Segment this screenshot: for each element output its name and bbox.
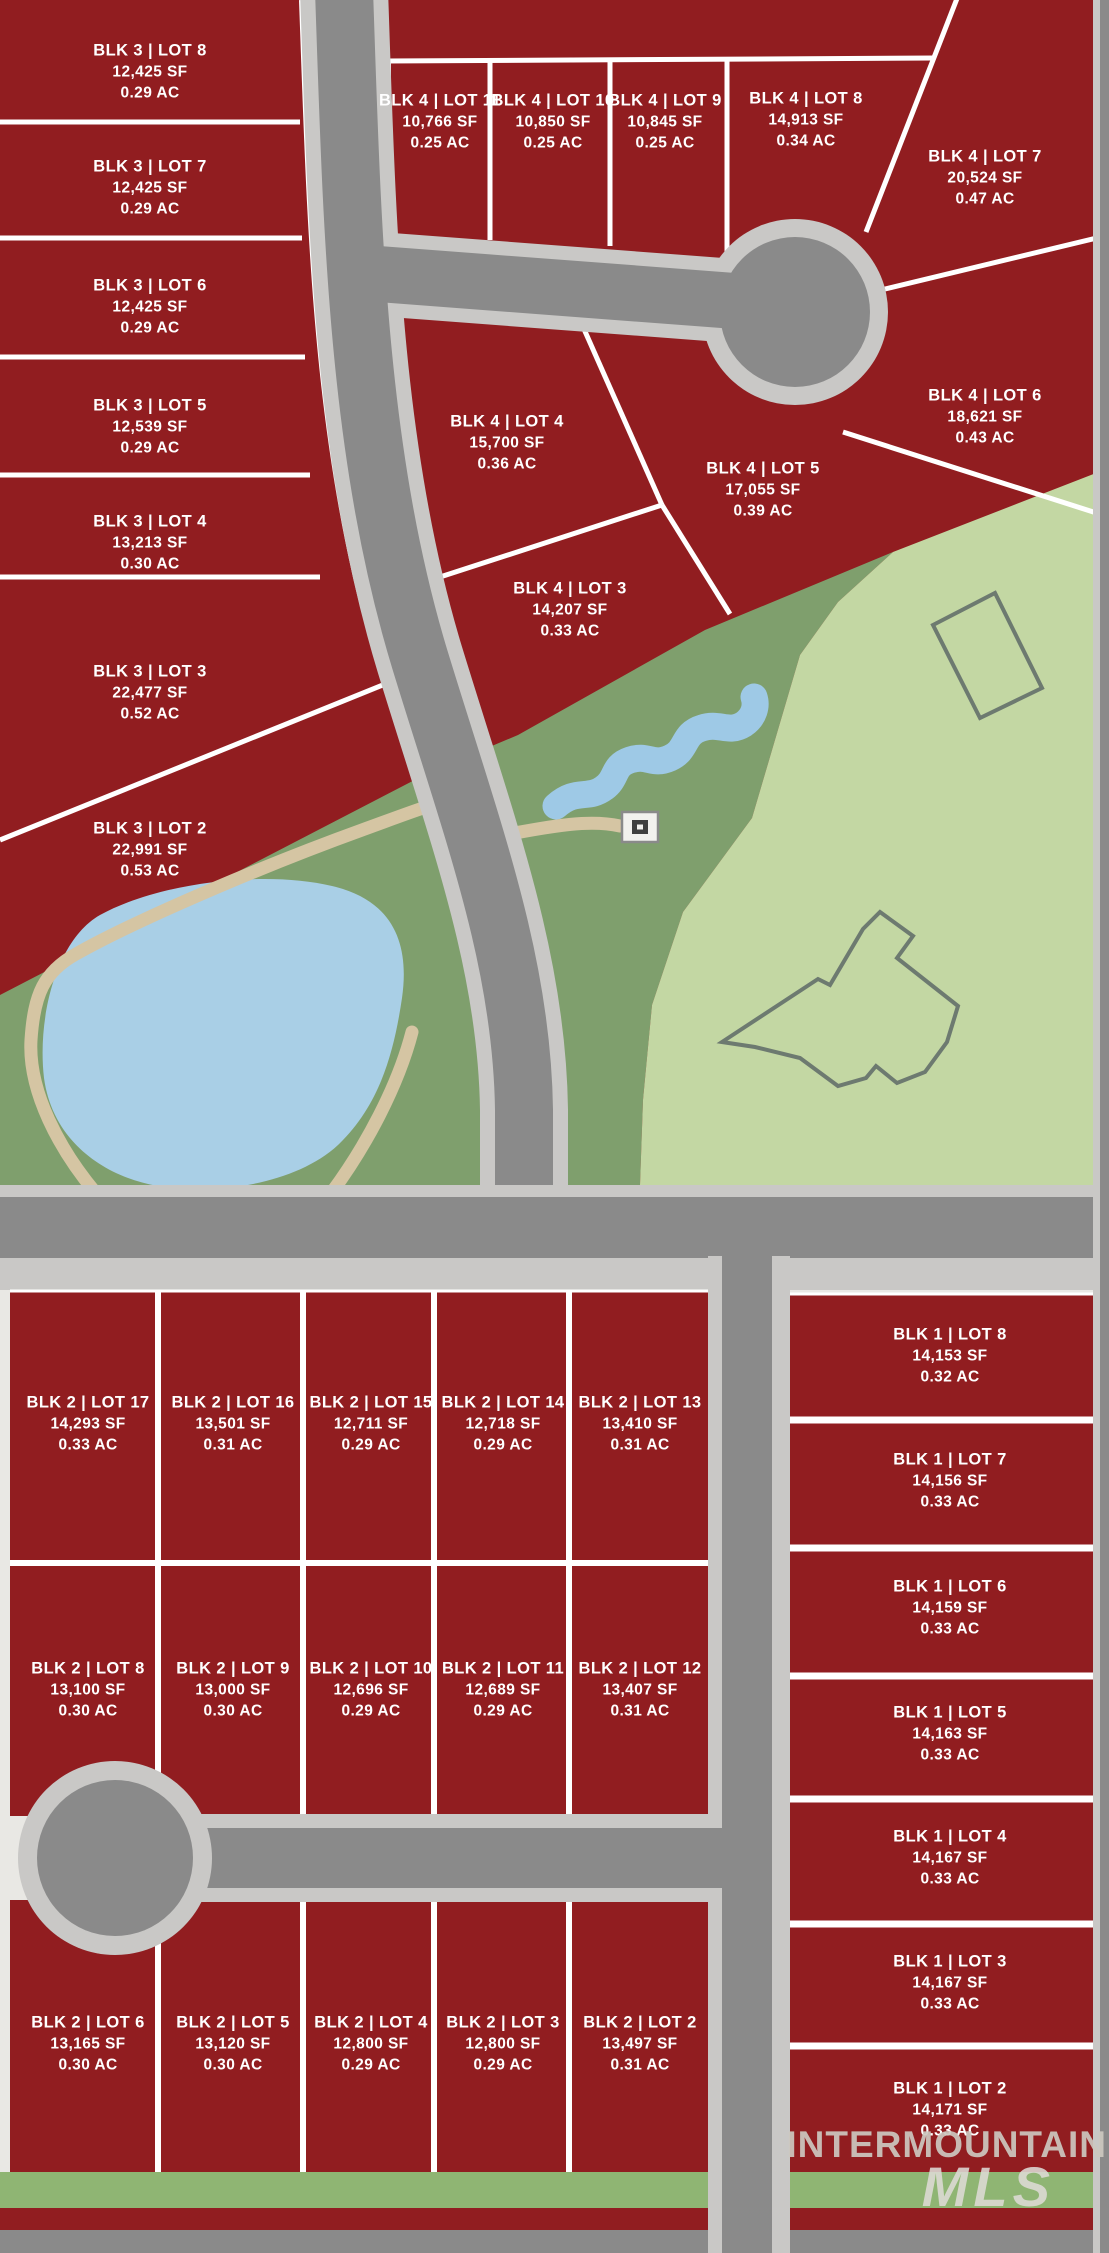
top-culdesac (720, 237, 870, 387)
horizontal-road (0, 1197, 1109, 1258)
plat-map: BLK 3 | LOT 812,425 SF0.29 ACBLK 3 | LOT… (0, 0, 1109, 2253)
right-road (1100, 0, 1109, 2253)
culdesac-road (352, 272, 748, 302)
right-road-sidewalk (1093, 0, 1100, 2253)
plat-map-graphics (0, 0, 1109, 2253)
vertical-road (722, 1256, 772, 2253)
watermark-mls: MLS (922, 2154, 1055, 2219)
well-icon (622, 812, 658, 842)
bottom-road-band (0, 2230, 1109, 2253)
bottom-culdesac (37, 1780, 193, 1936)
